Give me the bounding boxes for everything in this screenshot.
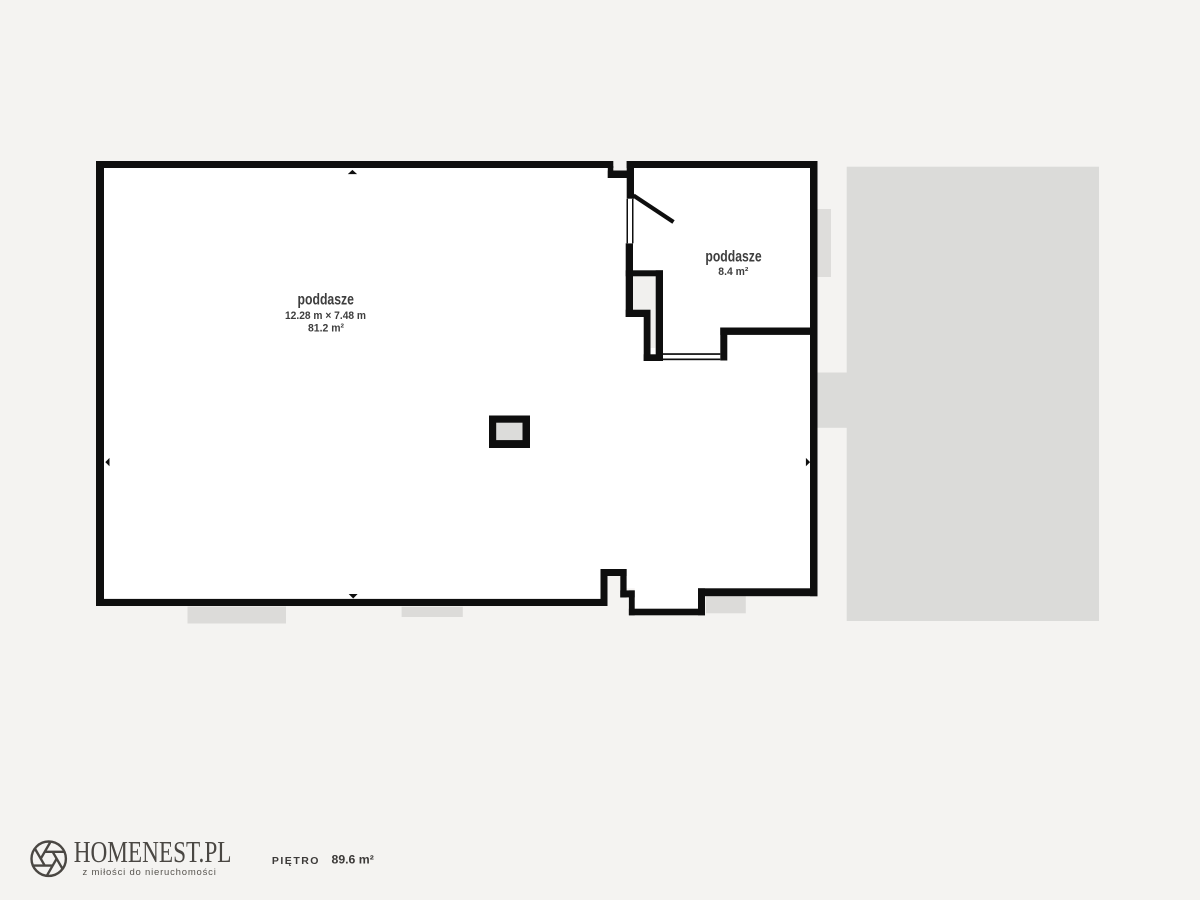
svg-text:PIĘTRO: PIĘTRO <box>272 855 320 867</box>
svg-text:poddasze: poddasze <box>298 292 355 309</box>
svg-text:z miłości do nieruchomości: z miłości do nieruchomości <box>83 867 219 878</box>
svg-text:12.28 m × 7.48 m: 12.28 m × 7.48 m <box>285 310 366 322</box>
svg-text:81.2 m²: 81.2 m² <box>308 323 344 335</box>
svg-text:8.4 m²: 8.4 m² <box>718 266 748 278</box>
svg-text:89.6 m²: 89.6 m² <box>332 853 374 867</box>
svg-text:HOMENEST.PL: HOMENEST.PL <box>74 835 232 869</box>
svg-text:poddasze: poddasze <box>705 249 761 266</box>
